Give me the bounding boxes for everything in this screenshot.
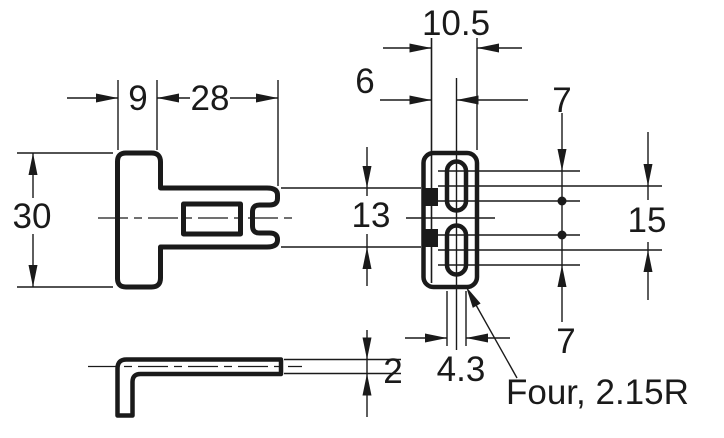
- bottom-view-outline: [118, 360, 282, 416]
- front-view: [406, 38, 662, 350]
- arrowhead: [96, 94, 118, 103]
- leader-arrowhead: [466, 287, 481, 308]
- arrowhead: [457, 96, 479, 105]
- dim-label-10-5: 10.5: [422, 4, 490, 43]
- arrowhead: [363, 338, 372, 360]
- arrowhead: [466, 334, 488, 343]
- dim-label-13: 13: [352, 196, 391, 235]
- front-view-tab-bottom: [425, 229, 439, 247]
- arrowhead: [157, 94, 179, 103]
- dim-label-7-bottom: 7: [556, 322, 575, 361]
- dim-label-6: 6: [355, 62, 374, 101]
- dim-label-30: 30: [13, 197, 52, 236]
- dim-label-9: 9: [128, 79, 147, 118]
- arrowhead: [363, 247, 372, 269]
- arrowhead: [410, 44, 432, 53]
- arrowhead: [644, 250, 653, 272]
- dim-side-widths: [67, 80, 278, 186]
- arrowhead: [558, 265, 567, 287]
- arrowhead: [29, 265, 38, 287]
- dim-label-15: 15: [628, 201, 667, 240]
- dim-label-4-3: 4.3: [437, 350, 486, 389]
- arrowhead: [363, 166, 372, 188]
- dimension-drawing-page: 9 28 30 10.5 6 7 15 7 13 4.3 2 Four, 2.1…: [0, 0, 724, 438]
- dim-label-2: 2: [383, 352, 402, 391]
- arc-center-dot: [558, 197, 567, 206]
- dim-front-slot-offset: [380, 96, 528, 105]
- arrowhead: [410, 96, 432, 105]
- dim-label-7-top: 7: [552, 81, 571, 120]
- side-view-hole: [184, 204, 241, 234]
- dim-front-overall-width: [383, 38, 522, 150]
- dim-front-arc-spans: [558, 113, 567, 322]
- arc-center-dot: [558, 231, 567, 240]
- bottom-view: [88, 360, 302, 416]
- radius-note: Four, 2.15R: [506, 373, 689, 412]
- technical-drawing-canvas: 9 28 30 10.5 6 7 15 7 13 4.3 2 Four, 2.1…: [0, 0, 724, 438]
- arrowhead: [644, 164, 653, 186]
- arrowhead: [558, 149, 567, 171]
- arrowhead: [425, 334, 447, 343]
- side-view: [98, 153, 298, 287]
- arrowhead: [29, 153, 38, 175]
- arrowhead: [477, 44, 499, 53]
- front-view-tab-top: [425, 188, 439, 206]
- arrowhead: [256, 94, 278, 103]
- arrowhead: [363, 374, 372, 396]
- dim-label-28: 28: [191, 79, 230, 118]
